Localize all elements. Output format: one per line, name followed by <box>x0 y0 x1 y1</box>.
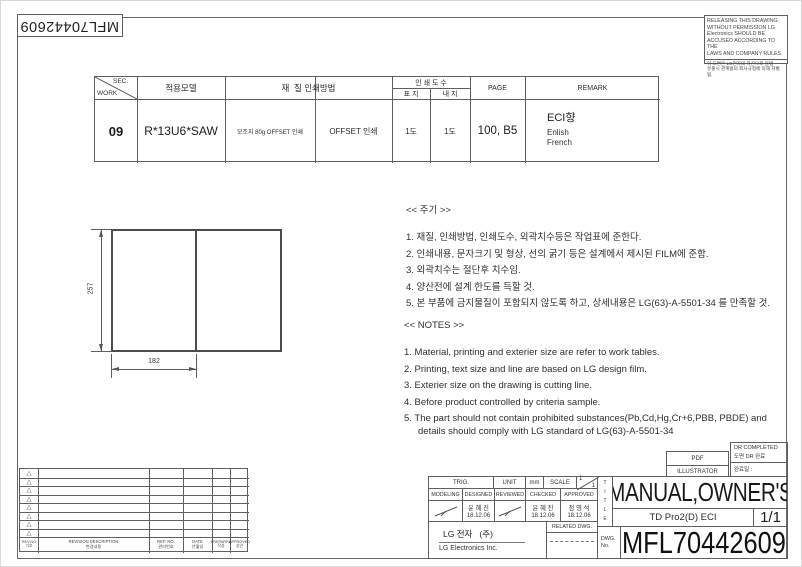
doc-number-rotated: MFL70442609 <box>20 18 119 34</box>
sheet-number: 1/1 <box>760 509 781 526</box>
rev-header-description: REVISION DESCRIPTION변경내용 <box>38 537 149 552</box>
col-header-model: 적용모델 <box>137 77 225 99</box>
checked-signature: 윤 혜 진 18.12.06 <box>525 500 561 522</box>
approved-signature: 정 영 석 18.12.06 <box>560 500 598 522</box>
dim-arrow-down-icon <box>99 344 103 351</box>
dwg-no-label-box: DWG. No. <box>597 526 621 559</box>
rev-header-no: REV.NO기호 <box>20 537 38 552</box>
notes-english-title: << NOTES >> <box>404 319 792 332</box>
dr-completed-en: DR COMPLETED <box>734 445 784 451</box>
dr-completed-ko: 도면 DR 완료 <box>734 452 784 460</box>
note-ko-5: 5. 본 부품에 금지물질이 포함되지 않도록 하고, 상세내용은 LG(63)… <box>406 297 791 310</box>
page-fold-line <box>195 229 197 352</box>
dwg-label: DWG. <box>601 536 620 542</box>
note-ko-4: 4. 양산전에 설계 한도를 득할 것. <box>406 281 791 294</box>
note-ko-1: 1. 재질, 인쇄방법, 인쇄도수, 외곽치수등은 작업표에 준한다. <box>406 231 791 244</box>
cell-page: 100, B5 <box>470 99 525 163</box>
drawing-subtitle-box: TD Pro2(D) ECI <box>612 508 754 527</box>
doc-number-box: MFL70442609 <box>17 14 123 37</box>
cell-sec-value: 09 <box>95 99 137 163</box>
dr-completed-box: DR COMPLETED 도면 DR 완료 완료일 : <box>730 442 788 477</box>
drawing-title-box: MANUAL,OWNER'S <box>612 476 788 509</box>
col-header-remark: REMARK <box>525 77 660 99</box>
related-dwg-label: RELATED DWG. <box>547 524 597 533</box>
signature-slash-icon <box>497 504 523 518</box>
reviewed-signature <box>494 500 526 522</box>
note-en-1: 1. Material, printing and exterier size … <box>404 346 792 359</box>
company-name-ko: LG 전자 (주) <box>443 528 546 540</box>
rev-header-approved: APPROVED승인 <box>230 537 249 552</box>
dwg-no: MFL70442609 <box>622 526 786 559</box>
dwg-label-no: No. <box>601 543 620 549</box>
approval-block: TRIG. UNIT mm SCALE 1 1 MODELING DESIGNE… <box>428 476 598 561</box>
revision-triangle-icon: △ <box>20 529 38 538</box>
dim-height-label: 257 <box>82 281 100 295</box>
note-ko-2: 2. 인쇄내용, 문자크기 및 형상, 선의 굵기 등은 설계에서 제시된 FI… <box>406 248 791 261</box>
drawing-sheet: MFL70442609 RELEASING THIS DRAWING WITHO… <box>0 0 802 567</box>
revision-triangle-icon: △ <box>20 469 38 478</box>
sec-label: SEC. <box>113 78 131 85</box>
signature-slash-icon <box>433 504 459 518</box>
cell-remark: ECI향 Enlish French <box>547 109 657 147</box>
revision-triangle-icon: △ <box>20 503 38 512</box>
revision-triangle-icon: △ <box>20 486 38 495</box>
dim-arrow-right-icon <box>189 367 196 371</box>
designed-signature: 윤 혜 진 18.12.06 <box>462 500 495 522</box>
dwg-no-box: MFL70442609 <box>620 526 788 559</box>
warning-text-ko: 이 도면은 LG전자의 자산으로 불법 유출시 관계법의 회사규정에 의해 처벌… <box>705 60 787 79</box>
dim-arrow-left-icon <box>112 367 119 371</box>
revision-triangle-icon: △ <box>20 478 38 487</box>
cell-material: 모조지 80g OFFSET 인쇄 <box>225 99 315 163</box>
col-header-print-count: 인 쇄 도 수 <box>392 77 470 88</box>
sheet-number-box: 1/1 <box>753 508 788 527</box>
col-header-page: PAGE <box>470 77 525 99</box>
related-dwg-box: RELATED DWG. <box>546 521 598 559</box>
rev-header-date: DATE년월일 <box>183 537 212 552</box>
notes-korean-title: << 주기 >> <box>406 204 791 217</box>
dim-width-label: 182 <box>134 357 174 366</box>
drawing-subtitle: TD Pro2(D) ECI <box>649 512 716 523</box>
dr-date-label: 완료일 : <box>731 463 787 475</box>
cell-inner-count: 1도 <box>430 99 470 163</box>
pdf-label: PDF <box>667 452 728 466</box>
work-label: WORK <box>97 90 117 97</box>
remark-line3: French <box>547 138 657 147</box>
warning-box: RELEASING THIS DRAWING WITHOUT PERMISSIO… <box>704 15 788 64</box>
col-header-material-method: 재 질 인쇄방법 <box>225 77 392 99</box>
pdf-illustrator-box: PDF ILLUSTRATOR <box>666 451 729 477</box>
note-ko-3: 3. 외곽치수는 절단후 치수임. <box>406 264 791 277</box>
revision-triangle-icon: △ <box>20 512 38 521</box>
revision-triangle-icon: △ <box>20 495 38 504</box>
title-vertical-strip: T I T L E <box>597 476 613 527</box>
col-header-inner: 내 지 <box>430 88 470 99</box>
warning-text-en: RELEASING THIS DRAWING WITHOUT PERMISSIO… <box>707 18 785 58</box>
dim-arrow-up-icon <box>99 230 103 237</box>
remark-line2: Enlish <box>547 128 657 137</box>
scale-top: 1 <box>579 476 582 482</box>
cell-method: OFFSET 인쇄 <box>315 99 392 163</box>
revision-triangle-icon: △ <box>20 520 38 529</box>
note-en-2: 2. Printing, text size and line are base… <box>404 363 792 376</box>
note-en-3: 3. Exterier size on the drawing is cutti… <box>404 379 792 392</box>
notes-korean: << 주기 >> 1. 재질, 인쇄방법, 인쇄도수, 외곽치수등은 작업표에 … <box>406 204 791 314</box>
note-en-5: 5. The part should not contain prohibite… <box>404 412 792 438</box>
work-table: SEC. WORK 적용모델 재 질 인쇄방법 인 쇄 도 수 표 지 내 지 … <box>94 76 659 162</box>
rev-header-ref: REF. NO.관리번호 <box>149 537 183 552</box>
remark-line1: ECI향 <box>547 109 657 125</box>
revision-table: △ △ △ △ △ △ △ △ REV.NO기호 REVISION DESCRI… <box>19 468 248 552</box>
company-box: LG 전자 (주) LG Electronics Inc. <box>428 521 547 559</box>
note-en-4: 4. Before product controlled by criteria… <box>404 396 792 409</box>
modeling-signature <box>428 500 463 522</box>
cell-model: R*13U6*SAW <box>137 99 225 163</box>
rev-header-prepared: PREPARED작성 <box>212 537 230 552</box>
col-header-cover: 표 지 <box>392 88 430 99</box>
company-name-en: LG Electronics Inc. <box>439 545 546 552</box>
cell-cover-count: 1도 <box>392 99 430 163</box>
drawing-title: MANUAL,OWNER'S <box>612 477 788 508</box>
notes-english: << NOTES >> 1. Material, printing and ex… <box>404 319 792 442</box>
